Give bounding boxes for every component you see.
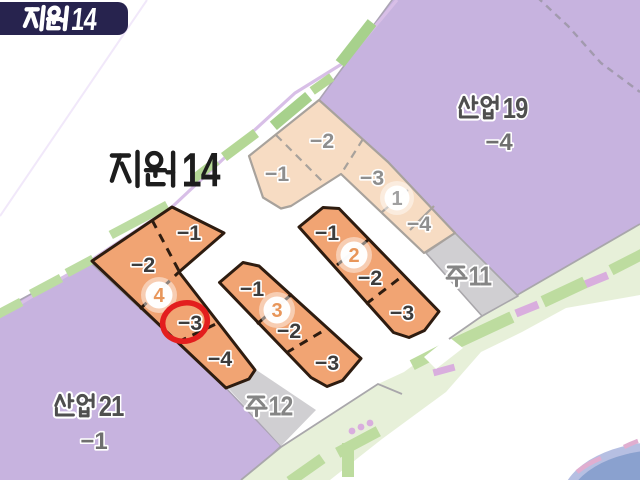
svg-text:3: 3 xyxy=(271,300,282,322)
svg-text:−2: −2 xyxy=(131,253,156,277)
svg-text:4: 4 xyxy=(153,285,165,307)
svg-text:−3: −3 xyxy=(390,301,415,325)
svg-text:14: 14 xyxy=(70,0,100,36)
svg-text:−4: −4 xyxy=(407,212,432,236)
svg-text:−1: −1 xyxy=(265,162,290,186)
svg-text:12: 12 xyxy=(269,391,293,422)
svg-text:−1: −1 xyxy=(240,277,265,301)
svg-text:21: 21 xyxy=(99,390,124,423)
svg-text:19: 19 xyxy=(503,92,528,125)
svg-text:−3: −3 xyxy=(178,311,203,335)
svg-text:−1: −1 xyxy=(80,428,107,455)
svg-text:2: 2 xyxy=(348,245,359,267)
svg-text:−3: −3 xyxy=(315,351,340,375)
svg-text:−4: −4 xyxy=(485,129,513,156)
svg-text:1: 1 xyxy=(391,188,402,210)
svg-text:−3: −3 xyxy=(360,166,385,190)
svg-text:−1: −1 xyxy=(177,221,202,245)
svg-text:−2: −2 xyxy=(310,129,335,153)
svg-text:14: 14 xyxy=(182,144,221,197)
svg-text:−4: −4 xyxy=(208,347,233,371)
svg-text:11: 11 xyxy=(469,261,492,292)
svg-text:−1: −1 xyxy=(315,221,340,245)
